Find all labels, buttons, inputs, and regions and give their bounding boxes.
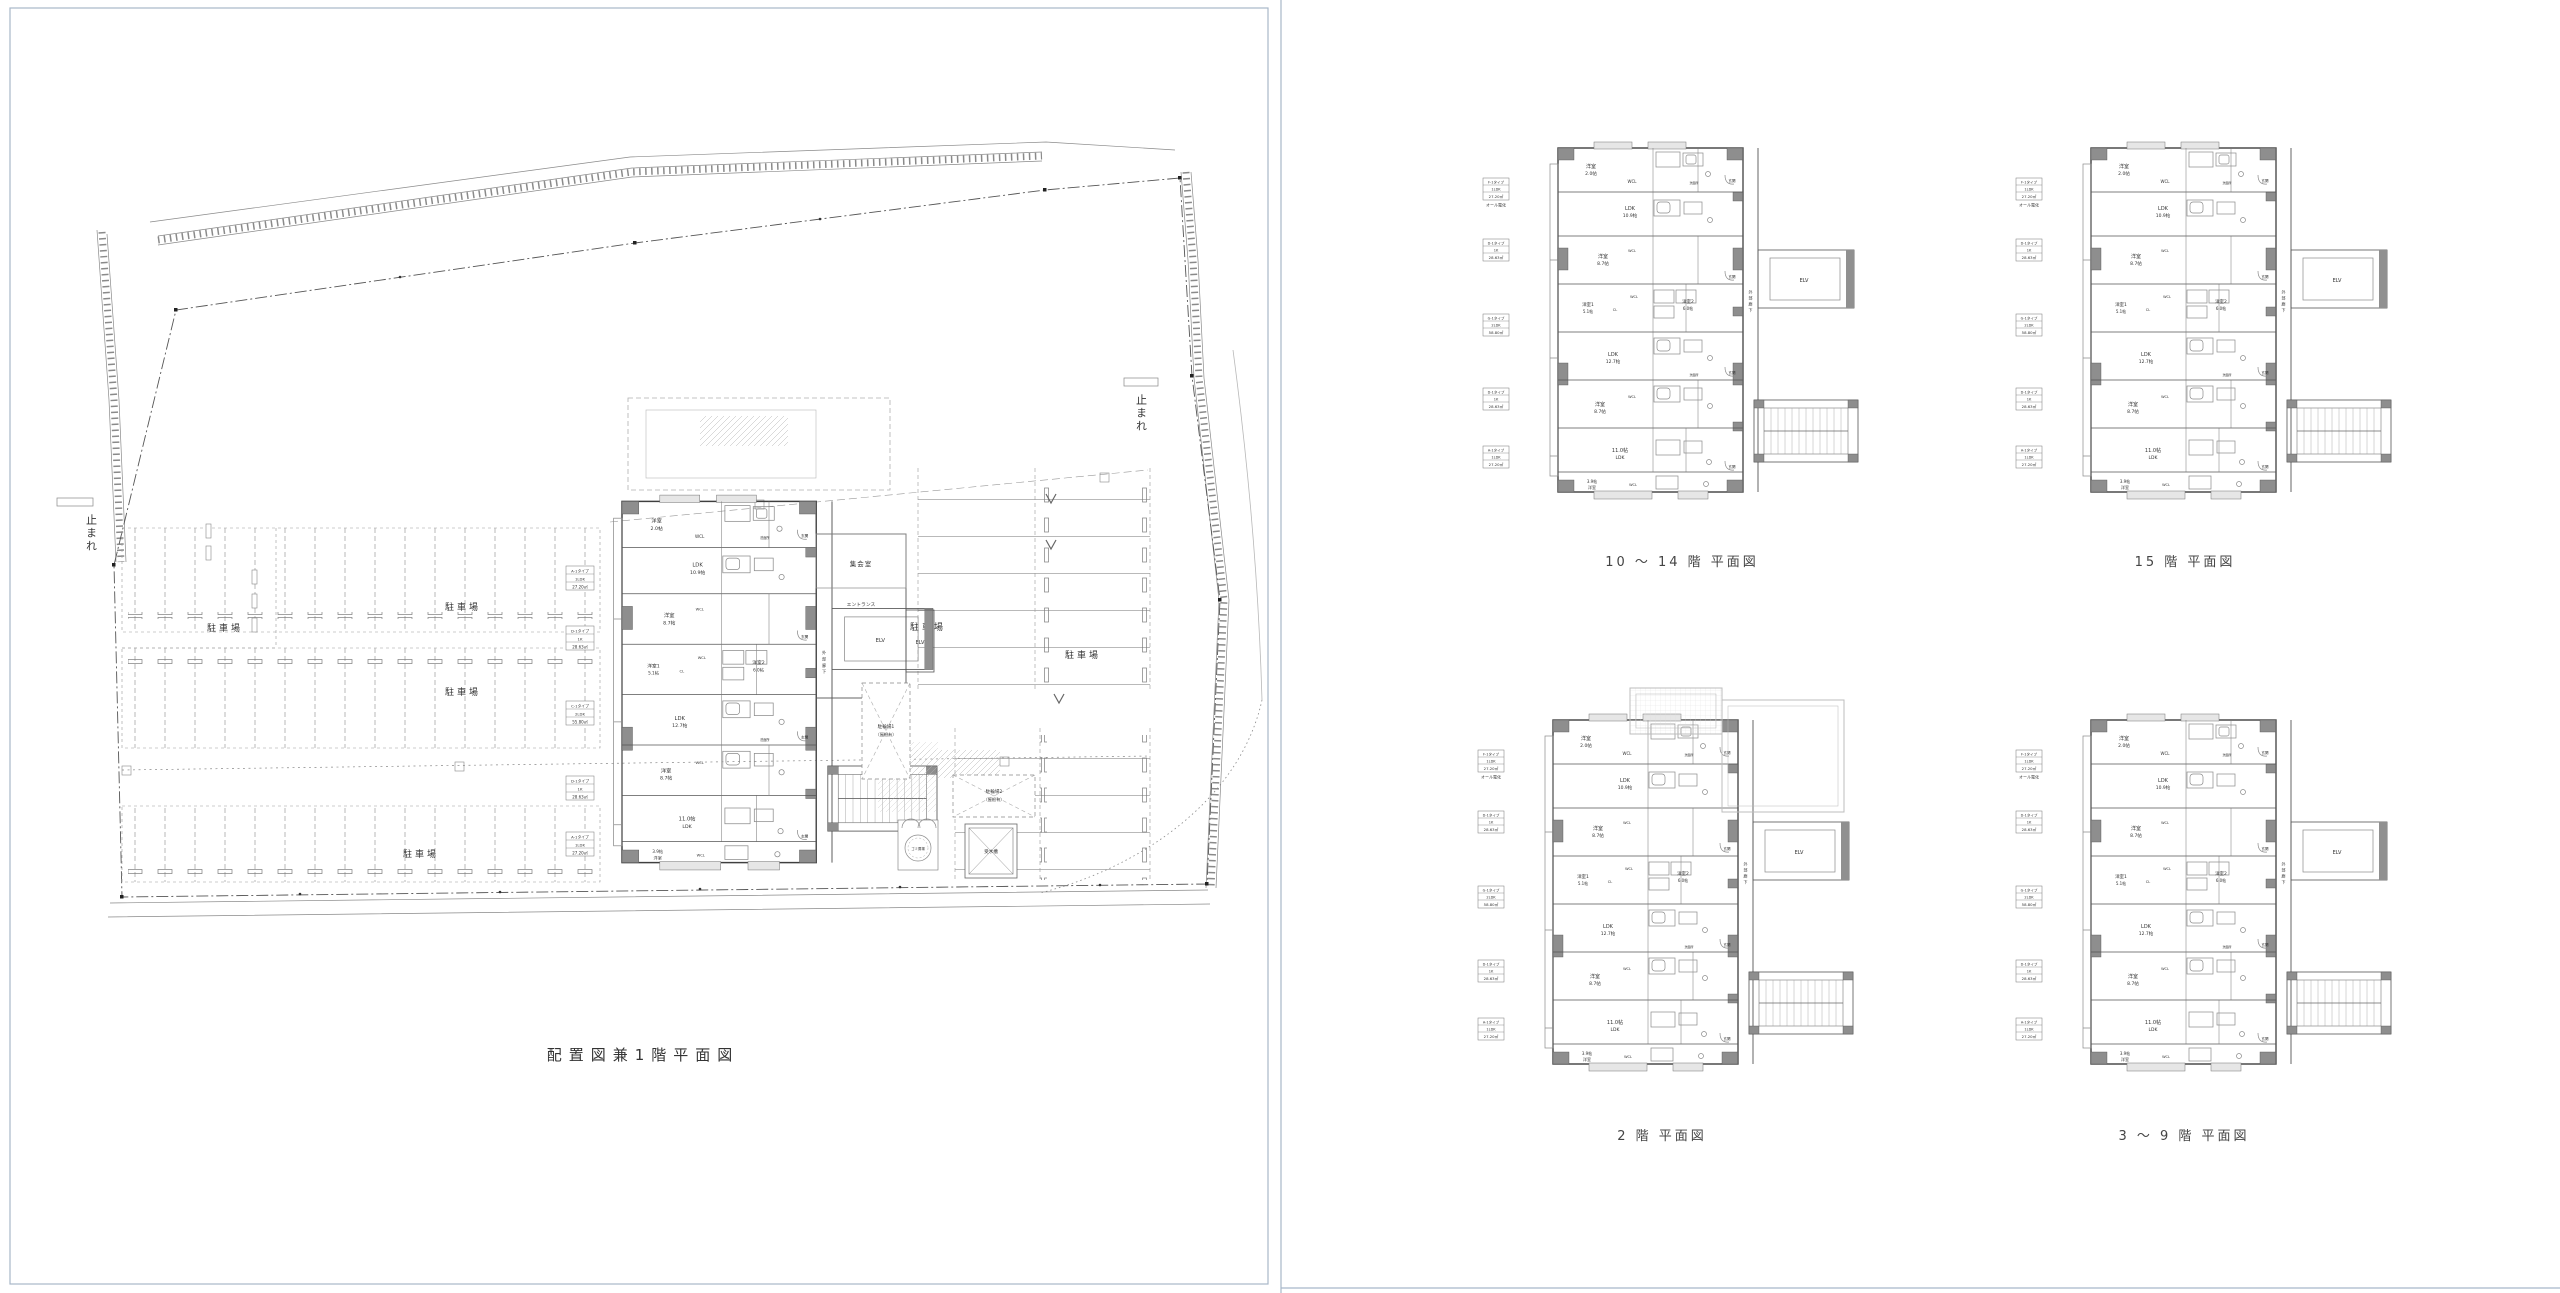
meeting-room-label: 集会室 [850, 559, 873, 568]
parking-label: 駐車場 [207, 622, 243, 634]
water-tank: 受水槽 [965, 824, 1017, 878]
floor-plan-15: 15 階 平面図 [2016, 142, 2391, 570]
unit-type: 1LDK [575, 577, 585, 582]
garbage-label: ゴミ置場 [911, 846, 925, 851]
blueprint-svg: 洋室 2.0帖 WCL LDK 10.9帖 洋室 8.7帖 WCL 洋室1 5.… [0, 0, 2560, 1293]
unit-tag: A-1タイプ 1LDK 27.20㎡ [566, 566, 594, 590]
elevator-label: ELV [916, 640, 925, 646]
plan-caption: 2 階 平面図 [1617, 1129, 1707, 1144]
plan-caption: 15 階 平面図 [2135, 555, 2236, 570]
bicycle-parking-2: 駐輪場2 （屋根有） [953, 775, 1035, 817]
entrance-wing: 集会室 エントランス ELV [816, 534, 934, 698]
floor-plan-2: 2 階 平面図 [1478, 688, 1853, 1144]
site-facilities: 駐輪場1 （屋根有） 駐輪場2 （屋根有） 受水槽 ゴミ置場 [862, 683, 1035, 878]
plan-caption: 10 ～ 14 階 平面図 [1605, 555, 1759, 570]
entrance-hall-label: エントランス [847, 602, 876, 608]
unit-tag: D-1タイプ 1K 28.63㎡ [566, 776, 594, 800]
parking-label: 駐車場 [403, 848, 439, 860]
bicycle-parking-1: 駐輪場1 （屋根有） [862, 683, 910, 779]
parking-label: 駐車場 [445, 601, 481, 613]
garbage-station: ゴミ置場 [898, 819, 938, 870]
unit-tag: D-1タイプ 1K 28.63㎡ [566, 626, 594, 650]
unit-code: D-1タイプ [571, 629, 589, 634]
right-page-border [1281, 0, 2560, 1293]
unit-type: 1LDK [575, 843, 585, 848]
bicycle-parking-1-label: 駐輪場1 [878, 723, 895, 730]
unit-type: 2LDK [575, 712, 585, 717]
unit-code: C-1タイプ [571, 704, 589, 709]
unit-code: A-1タイプ [571, 569, 589, 574]
bicycle-parking-2-note: （屋根有） [984, 796, 1005, 803]
drawing-sheet: 洋室 2.0帖 WCL LDK 10.9帖 洋室 8.7帖 WCL 洋室1 5.… [0, 0, 2560, 1293]
unit-tag: C-1タイプ 2LDK 55.80㎡ [566, 701, 594, 725]
building-1f: 集会室 エントランス ELV [614, 495, 937, 870]
unit-type: 1K [578, 637, 583, 642]
roof-outline-below [1630, 688, 1844, 812]
unit-type: 1K [578, 787, 583, 792]
unit-area: 27.20㎡ [572, 850, 587, 856]
stop-sign-label: 止まれ [1135, 394, 1148, 433]
entrance-canopy-roof [628, 398, 890, 490]
unit-area: 28.63㎡ [572, 794, 587, 800]
site-plan: 駐車場 駐車場 駐車場 駐車場 駐車場 駐車場 集会室 エントランス ELV A… [57, 142, 1262, 1064]
stop-sign-label: 止まれ [85, 514, 98, 553]
stop-sign-west: 止まれ [57, 498, 98, 553]
sheet-title: 配置図兼1階平面図 [547, 1046, 740, 1064]
floor-plan-3-9: 3 ～ 9 階 平面図 [2016, 714, 2391, 1144]
bicycle-parking-2-label: 駐輪場2 [986, 788, 1003, 795]
plan-caption: 3 ～ 9 階 平面図 [2118, 1129, 2249, 1144]
unit-area: 55.80㎡ [572, 719, 587, 725]
unit-tag: A-1タイプ 1LDK 27.20㎡ [566, 832, 594, 856]
parking-label: 駐車場 [445, 686, 481, 698]
unit-code: D-1タイプ [571, 779, 589, 784]
water-tank-label: 受水槽 [984, 848, 998, 855]
parking-area-east [918, 468, 1150, 882]
parking-label: 駐車場 [1065, 649, 1101, 661]
unit-code: A-1タイプ [571, 835, 589, 840]
stop-sign-east: 止まれ [1124, 378, 1158, 433]
unit-area: 28.63㎡ [572, 644, 587, 650]
unit-area: 27.20㎡ [572, 584, 587, 590]
bicycle-parking-1-note: （屋根有） [876, 731, 897, 738]
floor-plan-10-14: 10 ～ 14 階 平面図 [1483, 142, 1858, 570]
